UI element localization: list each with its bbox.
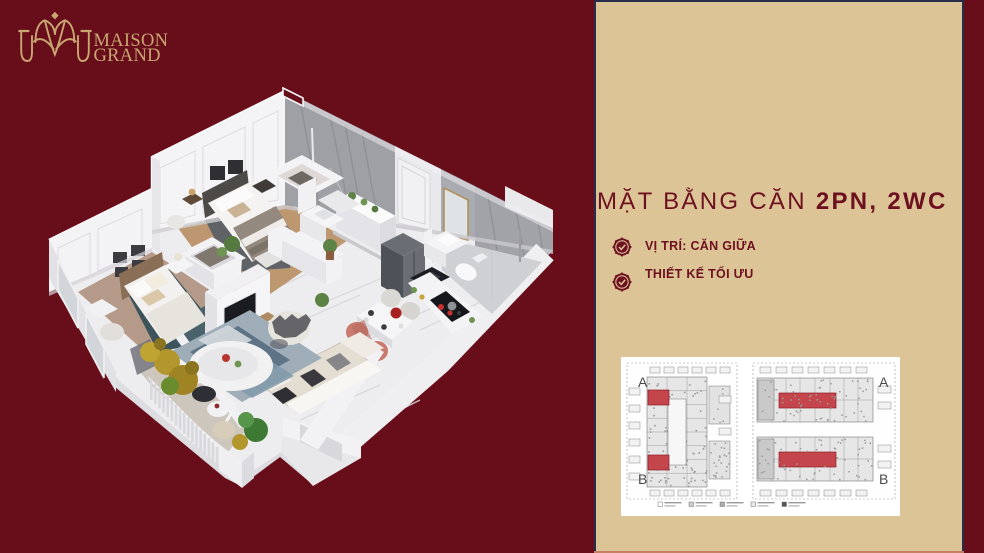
svg-text:A: A	[638, 374, 648, 390]
svg-text:B: B	[879, 471, 888, 487]
svg-text:B: B	[638, 471, 647, 487]
svg-text:A: A	[879, 374, 889, 390]
